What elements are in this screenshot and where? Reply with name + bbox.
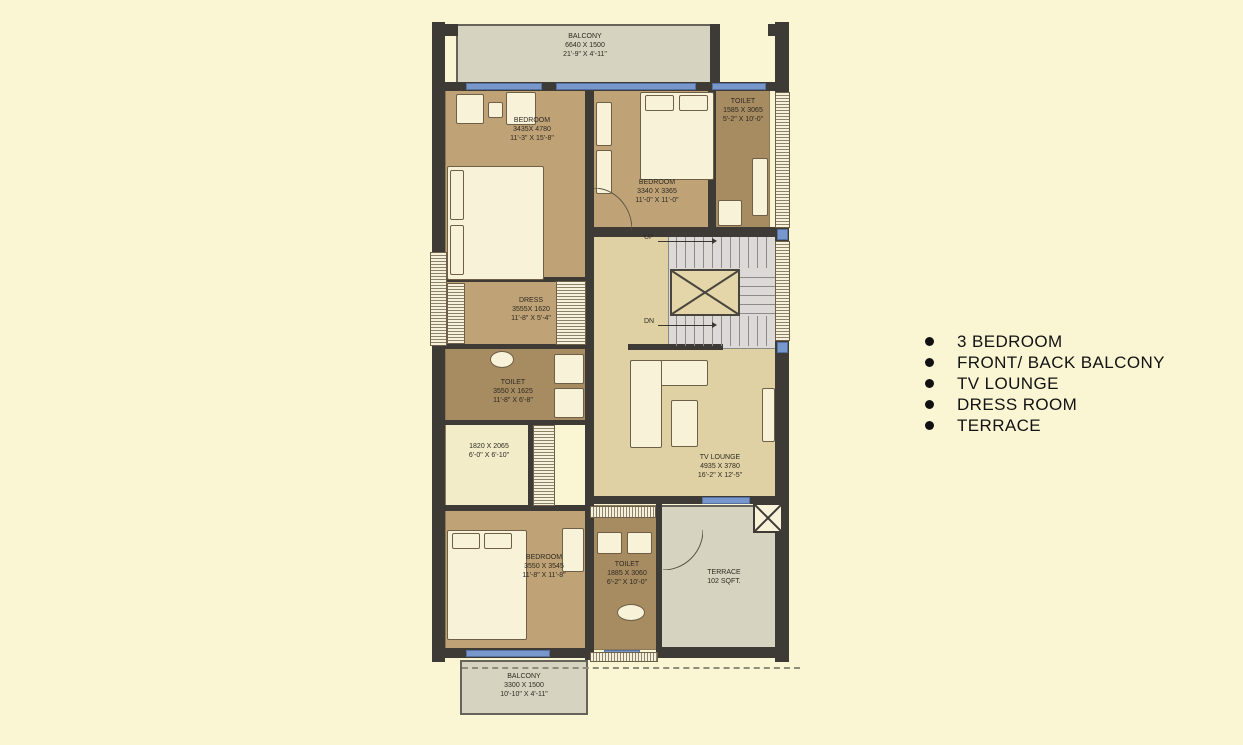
bullet-icon — [925, 379, 934, 388]
window-right-wall-lower — [777, 342, 788, 353]
list-item: 3 BEDROOM — [925, 331, 1165, 352]
wall-between-top-bedrooms — [585, 88, 594, 236]
fixture-sink — [490, 351, 514, 368]
railing-bottom — [590, 652, 658, 662]
label-toilet-mid: TOILET 3550 X 1625 11'-8" X 6'-8" — [463, 378, 563, 405]
label-bedroom-top-right: BEDROOM 3340 X 3365 11'-0" X 11'-0" — [607, 178, 707, 205]
window-right-wall-upper — [777, 229, 788, 240]
furniture-pillow — [450, 170, 464, 220]
label-balcony-top: BALCONY 6640 X 1500 21'-9" X 4'-11" — [525, 32, 645, 59]
stairs-dn-arrowhead-icon — [712, 322, 717, 328]
stairs-dn-label: DN — [644, 318, 654, 325]
floor-plan-page: UP DN B — [0, 0, 1243, 745]
wall-terrace-bottom — [658, 647, 789, 658]
dashed-floor-line — [462, 667, 800, 669]
feature-label: FRONT/ BACK BALCONY — [957, 353, 1165, 373]
wall-center-spine — [585, 232, 594, 660]
window-toilet-tr — [712, 83, 766, 90]
closet-dress-left — [447, 283, 465, 344]
label-store: 1820 X 2065 6'-0" X 6'-10" — [444, 442, 534, 460]
railing-left-wall — [430, 252, 447, 346]
label-toilet-top-right: TOILET 1585 X 3065 5'-2" X 10'-0" — [698, 97, 788, 124]
fixture-wc — [617, 604, 645, 621]
furniture-wardrobe — [596, 102, 612, 146]
wall-stub-balcony-right — [710, 24, 720, 88]
stairs-up-arrow — [658, 241, 713, 242]
window-bedroom-b — [466, 650, 550, 657]
wall-stub-top-left — [432, 24, 458, 36]
wall-toilet-mid-bottom — [445, 420, 593, 425]
wall-store-bottom — [445, 505, 593, 511]
closet-store-right — [533, 425, 555, 506]
list-item: FRONT/ BACK BALCONY — [925, 352, 1165, 373]
stairs-dn-arrow — [658, 325, 713, 326]
furniture-tv-unit — [762, 388, 775, 442]
furniture-sofa — [630, 360, 662, 448]
shaft-box — [753, 503, 783, 533]
closet-above-toilet-b — [590, 506, 656, 518]
label-toilet-bottom: TOILET 1885 X 3060 6'-2" X 10'-0" — [582, 560, 672, 587]
stair-void — [670, 269, 740, 316]
stair-treads-right — [740, 269, 775, 316]
label-dress: DRESS 3555X 1620 11'-8" X 5'-4" — [481, 296, 581, 323]
list-item: TV LOUNGE — [925, 373, 1165, 394]
furniture-pillow — [484, 533, 512, 549]
feature-label: TERRACE — [957, 416, 1041, 436]
label-bedroom-top-left: BEDROOM 3435X 4780 11'-3" X 15'-8" — [482, 116, 582, 143]
room-store — [445, 423, 531, 508]
stairs-up-label: UP — [644, 234, 654, 241]
feature-label: 3 BEDROOM — [957, 332, 1063, 352]
fixture-sink — [627, 532, 652, 554]
wall-stub-top-right — [768, 24, 789, 36]
window-terrace-top — [702, 497, 750, 504]
railing-right-wall-lower — [775, 241, 790, 341]
label-tv-lounge: TV LOUNGE 4935 X 3780 16'-2" X 12'-5" — [670, 453, 770, 480]
stairs-up-arrowhead-icon — [712, 238, 717, 244]
stair-void-x-icon — [672, 271, 738, 314]
label-bedroom-bottom: BEDROOM 3550 X 3545 11'-8" X 11'-8" — [494, 553, 594, 580]
stair-treads-lower — [668, 316, 775, 346]
features-list: 3 BEDROOM FRONT/ BACK BALCONY TV LOUNGE … — [925, 331, 1165, 436]
fixture-shower — [752, 158, 768, 216]
window-balcony-top-right — [556, 83, 696, 90]
furniture-pillow — [645, 95, 674, 111]
bullet-icon — [925, 400, 934, 409]
fixture-sink — [597, 532, 622, 554]
list-item: DRESS ROOM — [925, 394, 1165, 415]
furniture-pillow — [450, 225, 464, 275]
bullet-icon — [925, 358, 934, 367]
bullet-icon — [925, 337, 934, 346]
label-balcony-bottom: BALCONY 3300 X 1500 10'-10" X 4'-11" — [464, 672, 584, 699]
window-balcony-top-left — [466, 83, 542, 90]
label-terrace: TERRACE 102 SQFT. — [674, 568, 774, 586]
feature-label: DRESS ROOM — [957, 395, 1077, 415]
furniture-pillow — [452, 533, 480, 549]
list-item: TERRACE — [925, 415, 1165, 436]
bullet-icon — [925, 421, 934, 430]
fixture-wc — [718, 200, 742, 226]
furniture-coffee-table — [671, 400, 698, 447]
shaft-x-icon — [755, 505, 781, 531]
furniture-dresser — [456, 94, 484, 124]
feature-label: TV LOUNGE — [957, 374, 1059, 394]
